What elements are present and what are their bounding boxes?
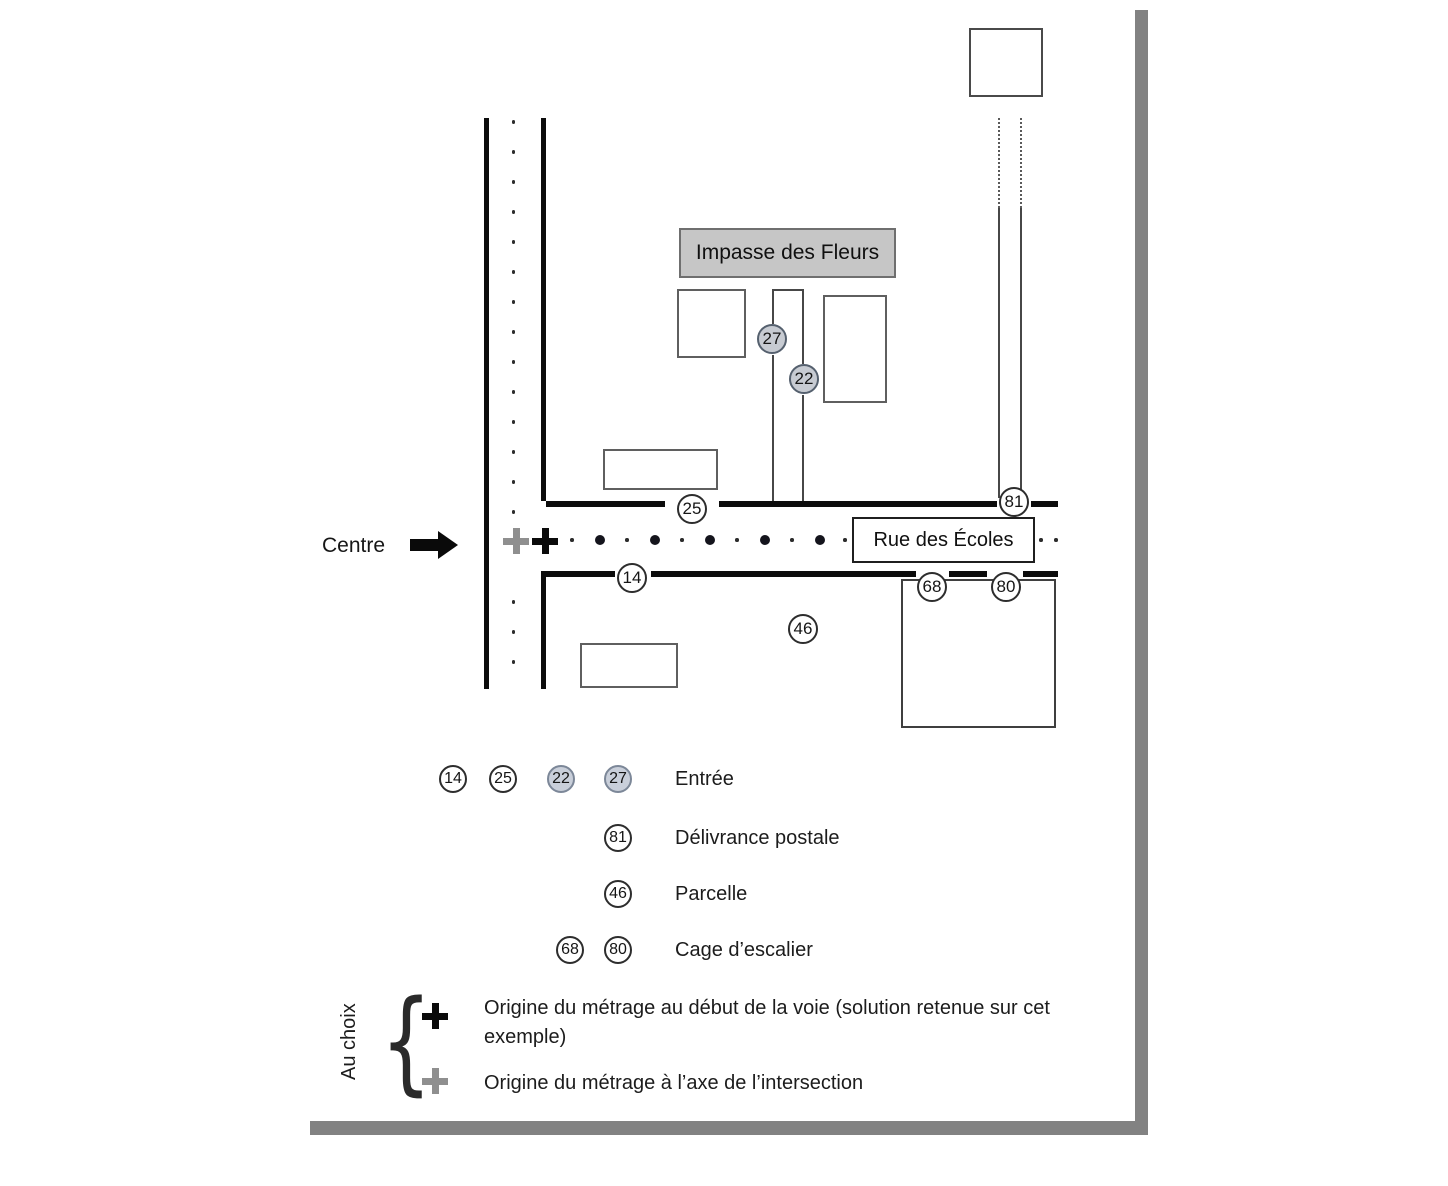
legend-plus-black-icon (422, 1003, 448, 1029)
map-marker-81: 81 (999, 487, 1029, 517)
page-shadow-bottom (310, 1121, 1148, 1135)
legend-label-delivrance: Délivrance postale (675, 825, 840, 851)
impasse-road-right-line (802, 395, 804, 501)
impasse-label-text: Impasse des Fleurs (696, 241, 879, 265)
building (969, 28, 1043, 97)
building (677, 289, 746, 358)
road-axis-dot (512, 510, 516, 514)
legend-circle-68: 68 (556, 936, 584, 964)
legend-origin-start-text: Origine du métrage au début de la voie (… (484, 994, 1084, 1052)
impasse-road-right-line (802, 289, 804, 364)
street-top-edge-segment (719, 501, 997, 507)
map-marker-22: 22 (789, 364, 819, 394)
road-axis-dot (512, 120, 516, 124)
access-path-solid-right (1020, 208, 1022, 498)
building (603, 449, 718, 490)
legend-circle-46: 46 (604, 880, 632, 908)
street-metering-dot (595, 535, 605, 545)
legend-label-parcelle: Parcelle (675, 881, 747, 907)
au-choix-label: Au choix (338, 986, 372, 1098)
map-marker-68: 68 (917, 572, 947, 602)
street-bottom-edge-segment (546, 571, 615, 577)
road-axis-dot (512, 240, 516, 244)
impasse-des-fleurs-label: Impasse des Fleurs (679, 228, 896, 278)
road-axis-dot (512, 630, 516, 634)
legend-plus-gray-icon (422, 1068, 448, 1094)
building (580, 643, 678, 688)
road-axis-dot (512, 330, 516, 334)
rue-des-ecoles-label: Rue des Écoles (852, 517, 1035, 563)
street-axis-dot (1054, 538, 1058, 542)
map-marker-80: 80 (991, 572, 1021, 602)
street-axis-dot (680, 538, 684, 542)
legend-circle-27: 27 (604, 765, 632, 793)
vertical-road-right-edge-upper (541, 118, 546, 501)
au-choix-brace: { (380, 976, 413, 1108)
rue-label-text: Rue des Écoles (873, 529, 1013, 552)
street-metering-dot (705, 535, 715, 545)
map-marker-46: 46 (788, 614, 818, 644)
road-axis-dot (512, 360, 516, 364)
legend-origin-axis-text: Origine du métrage à l’axe de l’intersec… (484, 1069, 1084, 1098)
access-path-dotted-right (1020, 118, 1022, 208)
street-metering-dot (760, 535, 770, 545)
map-marker-27: 27 (757, 324, 787, 354)
street-bottom-edge-dash (1023, 571, 1058, 577)
street-top-edge-segment (546, 501, 665, 507)
legend-circle-25: 25 (489, 765, 517, 793)
impasse-road-top-cap (773, 289, 804, 291)
street-axis-dot (790, 538, 794, 542)
legend-circle-81: 81 (604, 824, 632, 852)
street-metering-dot (650, 535, 660, 545)
road-axis-dot (512, 210, 516, 214)
access-path-solid-left (998, 208, 1000, 498)
legend-circle-14: 14 (439, 765, 467, 793)
access-path-dotted-left (998, 118, 1000, 208)
building-large (901, 579, 1056, 728)
road-axis-dot (512, 480, 516, 484)
road-axis-dot (512, 300, 516, 304)
impasse-road-left-line (772, 355, 774, 501)
road-axis-dot (512, 450, 516, 454)
street-axis-dot (843, 538, 847, 542)
impasse-road-left-line (772, 289, 774, 324)
street-bottom-edge-segment (651, 571, 916, 577)
origin-start-plus-icon (532, 528, 558, 554)
building (823, 295, 887, 403)
legend-label-entree: Entrée (675, 766, 734, 792)
street-axis-dot (570, 538, 574, 542)
map-marker-14: 14 (617, 563, 647, 593)
road-axis-dot (512, 600, 516, 604)
map-marker-25: 25 (677, 494, 707, 524)
origin-axis-plus-icon (503, 528, 529, 554)
road-axis-dot (512, 390, 516, 394)
diagram-canvas: Centre Impasse des Fleurs Rue des Écoles… (0, 0, 1448, 1186)
legend-circle-80: 80 (604, 936, 632, 964)
legend-circle-22: 22 (547, 765, 575, 793)
street-top-edge-segment (1031, 501, 1058, 507)
road-axis-dot (512, 660, 516, 664)
street-bottom-edge-dash (949, 571, 987, 577)
centre-label: Centre (322, 534, 385, 558)
road-axis-dot (512, 180, 516, 184)
street-axis-dot (1039, 538, 1043, 542)
centre-arrow-icon (410, 529, 458, 561)
street-axis-dot (625, 538, 629, 542)
street-metering-dot (815, 535, 825, 545)
legend-label-cage: Cage d’escalier (675, 937, 813, 963)
road-axis-dot (512, 150, 516, 154)
page-shadow-right (1135, 10, 1148, 1135)
road-axis-dot (512, 270, 516, 274)
vertical-road-left-edge (484, 118, 489, 689)
road-axis-dot (512, 420, 516, 424)
vertical-road-right-edge-lower (541, 571, 546, 689)
street-axis-dot (735, 538, 739, 542)
